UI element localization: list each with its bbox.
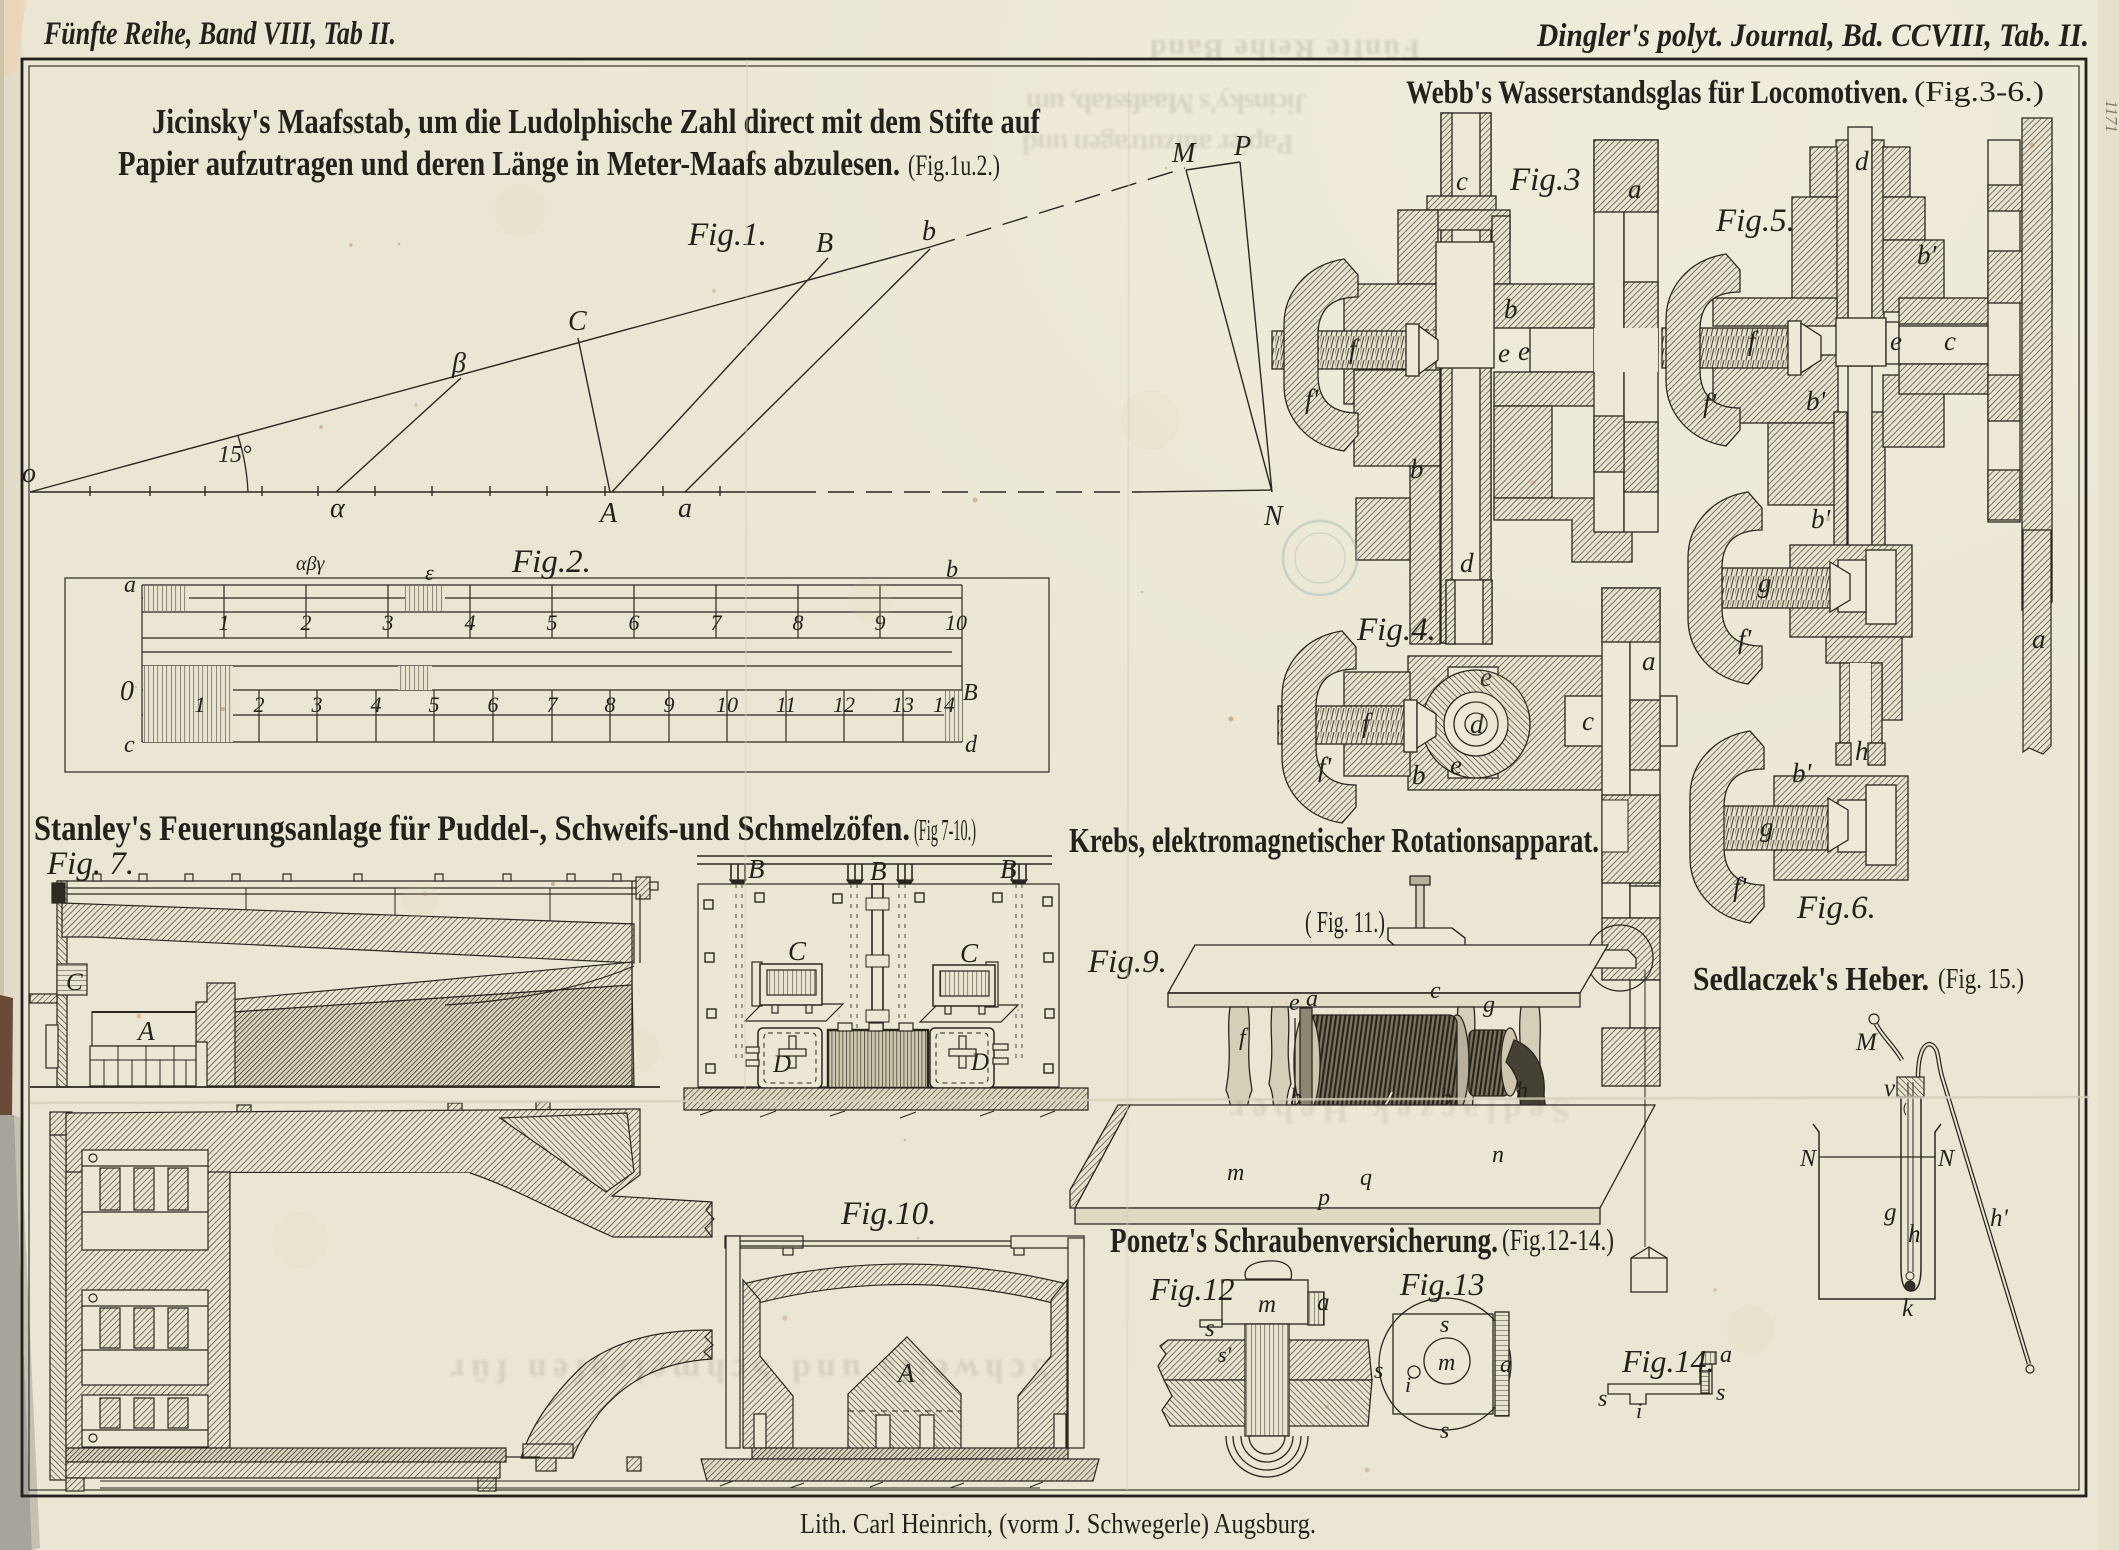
svg-text:A: A bbox=[598, 498, 618, 529]
svg-text:a: a bbox=[1500, 1352, 1512, 1378]
svg-text:e: e bbox=[1518, 336, 1530, 366]
svg-text:b: b bbox=[1412, 760, 1426, 790]
svg-text:s': s' bbox=[1218, 1342, 1232, 1367]
svg-text:f': f' bbox=[1738, 624, 1753, 654]
svg-text:Fig.10.: Fig.10. bbox=[840, 1196, 936, 1232]
svg-text:( Fig. 11.): ( Fig. 11.) bbox=[1305, 904, 1385, 939]
svg-text:m: m bbox=[1258, 1291, 1276, 1318]
svg-text:c: c bbox=[1944, 326, 1956, 356]
svg-text:(Fig. 15.): (Fig. 15.) bbox=[1938, 963, 2024, 995]
svg-text:B: B bbox=[748, 854, 765, 884]
svg-text:5: 5 bbox=[429, 692, 440, 717]
svg-text:C: C bbox=[568, 306, 587, 337]
svg-text:Fig.12: Fig.12 bbox=[1149, 1271, 1234, 1307]
svg-text:e: e bbox=[1498, 338, 1510, 368]
svg-text:αβγ: αβγ bbox=[296, 553, 325, 575]
svg-text:1171: 1171 bbox=[2102, 100, 2119, 133]
svg-text:Jicinsky's Maafsstab, um: Jicinsky's Maafsstab, um bbox=[1026, 87, 1308, 119]
svg-text:Ponetz's Schraubenversicherung: Ponetz's Schraubenversicherung. bbox=[1110, 1221, 1498, 1260]
svg-text:f': f' bbox=[1703, 388, 1718, 418]
svg-text:14: 14 bbox=[933, 692, 955, 717]
svg-text:b: b bbox=[1504, 294, 1518, 324]
svg-text:Fig.4.: Fig.4. bbox=[1356, 612, 1436, 648]
svg-text:Fig.2.: Fig.2. bbox=[511, 544, 591, 580]
svg-text:D: D bbox=[772, 1051, 791, 1078]
svg-text:f': f' bbox=[1733, 872, 1748, 902]
svg-text:C: C bbox=[788, 936, 807, 966]
svg-text:3: 3 bbox=[382, 610, 394, 635]
svg-text:D: D bbox=[970, 1049, 989, 1076]
svg-text:C: C bbox=[960, 938, 979, 968]
svg-text:a: a bbox=[1628, 174, 1642, 204]
svg-text:8: 8 bbox=[605, 692, 616, 717]
svg-text:k: k bbox=[1902, 1295, 1914, 1322]
svg-text:(Fig.1u.2.): (Fig.1u.2.) bbox=[908, 149, 1000, 182]
svg-text:0: 0 bbox=[120, 676, 134, 707]
svg-text:5: 5 bbox=[547, 610, 558, 635]
svg-text:e: e bbox=[1450, 750, 1462, 780]
svg-text:Fig. 7.: Fig. 7. bbox=[46, 846, 134, 882]
svg-text:o: o bbox=[22, 458, 36, 489]
svg-text:6: 6 bbox=[488, 692, 499, 717]
svg-text:c: c bbox=[1430, 978, 1441, 1004]
svg-text:B: B bbox=[870, 856, 887, 886]
svg-text:d: d bbox=[1855, 146, 1869, 176]
svg-text:d: d bbox=[1460, 548, 1474, 578]
svg-text:h': h' bbox=[1990, 1205, 2009, 1232]
svg-text:Webb's Wasserstandsglas für Lo: Webb's Wasserstandsglas für Locomotiven. bbox=[1406, 75, 1908, 111]
svg-text:10: 10 bbox=[716, 692, 738, 717]
svg-text:6: 6 bbox=[629, 610, 640, 635]
svg-text:Stanley's Feuerungsanlage für: Stanley's Feuerungsanlage für Puddel-, S… bbox=[34, 808, 910, 848]
svg-text:C: C bbox=[66, 969, 83, 996]
svg-text:Sedlaczek Heber: Sedlaczek Heber bbox=[1230, 1092, 1570, 1129]
svg-text:h: h bbox=[1908, 1221, 1921, 1248]
svg-text:s: s bbox=[1440, 1418, 1449, 1444]
svg-text:Fig.13: Fig.13 bbox=[1399, 1266, 1484, 1302]
svg-text:g: g bbox=[1483, 992, 1495, 1018]
svg-text:b: b bbox=[946, 557, 958, 583]
svg-text:4: 4 bbox=[465, 610, 476, 635]
svg-text:2: 2 bbox=[301, 610, 312, 635]
svg-text:s: s bbox=[1440, 1312, 1449, 1338]
svg-text:Sedlaczek's Heber.: Sedlaczek's Heber. bbox=[1693, 961, 1929, 998]
svg-text:b': b' bbox=[1917, 240, 1938, 270]
svg-text:g: g bbox=[1884, 1199, 1897, 1226]
svg-text:11: 11 bbox=[776, 692, 796, 717]
svg-text:Papier aufzutragen und deren L: Papier aufzutragen und deren Länge in Me… bbox=[118, 144, 900, 183]
svg-text:s: s bbox=[1716, 1380, 1725, 1406]
svg-text:a: a bbox=[124, 572, 136, 598]
svg-text:B: B bbox=[963, 680, 978, 706]
svg-text:β: β bbox=[451, 348, 466, 379]
svg-text:a: a bbox=[678, 493, 692, 524]
svg-text:B: B bbox=[816, 228, 833, 259]
svg-text:ε: ε bbox=[425, 560, 434, 585]
svg-text:c: c bbox=[124, 732, 135, 758]
svg-text:b: b bbox=[922, 216, 936, 247]
svg-text:Lith. Carl Heinrich, (vorm J.: Lith. Carl Heinrich, (vorm J. Schwegerle… bbox=[800, 1508, 1316, 1540]
svg-text:N: N bbox=[1937, 1146, 1956, 1172]
svg-text:Fig.1.: Fig.1. bbox=[687, 217, 767, 253]
svg-text:Fig.5.: Fig.5. bbox=[1715, 203, 1795, 239]
svg-text:N: N bbox=[1799, 1146, 1818, 1172]
svg-text:e: e bbox=[1890, 326, 1902, 356]
svg-text:s: s bbox=[1205, 1315, 1215, 1342]
svg-text:s: s bbox=[1598, 1386, 1607, 1412]
svg-text:Fünfte Reihe, Band VIII, Tab I: Fünfte Reihe, Band VIII, Tab II. bbox=[43, 16, 396, 52]
svg-text:1: 1 bbox=[219, 610, 230, 635]
svg-text:12: 12 bbox=[833, 692, 855, 717]
svg-text:Dingler's polyt. Journal, Bd.: Dingler's polyt. Journal, Bd. CCVIII, Ta… bbox=[1536, 18, 2089, 54]
svg-text:q: q bbox=[1360, 1165, 1372, 1191]
svg-text:i: i bbox=[1405, 1372, 1411, 1397]
svg-text:M: M bbox=[1855, 1029, 1878, 1056]
svg-text:m: m bbox=[1227, 1160, 1244, 1186]
svg-text:a: a bbox=[2032, 624, 2046, 654]
svg-text:B: B bbox=[1000, 854, 1017, 884]
svg-text:α: α bbox=[330, 493, 346, 524]
svg-text:a: a bbox=[1720, 1342, 1732, 1368]
svg-text:m: m bbox=[1438, 1350, 1455, 1376]
svg-text:c: c bbox=[1456, 166, 1468, 196]
svg-text:g: g bbox=[1760, 812, 1774, 842]
svg-text:Fig.3: Fig.3 bbox=[1509, 162, 1581, 198]
svg-text:3: 3 bbox=[311, 692, 323, 717]
svg-text:1: 1 bbox=[195, 692, 206, 717]
svg-text:f': f' bbox=[1305, 384, 1320, 414]
svg-text:N: N bbox=[1263, 501, 1284, 532]
svg-text:h: h bbox=[1855, 736, 1869, 766]
svg-text:b': b' bbox=[1792, 758, 1813, 788]
svg-text:a: a bbox=[1306, 986, 1318, 1012]
svg-text:7: 7 bbox=[547, 692, 559, 717]
svg-text:7: 7 bbox=[711, 610, 723, 635]
svg-text:(Fig 7-10.): (Fig 7-10.) bbox=[914, 812, 976, 847]
svg-text:A: A bbox=[136, 1016, 155, 1046]
svg-text:Fünfte Reihe Band: Fünfte Reihe Band bbox=[1150, 33, 1420, 66]
svg-text:i: i bbox=[1636, 1398, 1642, 1423]
svg-text:a: a bbox=[1642, 646, 1656, 676]
svg-text:p: p bbox=[1316, 1185, 1330, 1211]
svg-text:s: s bbox=[1374, 1358, 1383, 1384]
svg-text:Jicinsky's Maafsstab, um die L: Jicinsky's Maafsstab, um die Ludolphisch… bbox=[152, 102, 1040, 141]
svg-text:2: 2 bbox=[254, 692, 265, 717]
svg-text:4: 4 bbox=[371, 692, 382, 717]
svg-text:b: b bbox=[1410, 454, 1424, 484]
svg-text:15°: 15° bbox=[218, 442, 252, 468]
svg-text:a: a bbox=[1317, 1289, 1330, 1316]
svg-text:(Fig.3-6.): (Fig.3-6.) bbox=[1914, 76, 2044, 108]
svg-text:Papier aufzutragen und: Papier aufzutragen und bbox=[1022, 128, 1294, 160]
svg-text:Krebs, elektromagnetischer Rot: Krebs, elektromagnetischer Rotationsappa… bbox=[1069, 821, 1599, 860]
svg-text:10: 10 bbox=[945, 610, 967, 635]
svg-text:9: 9 bbox=[664, 692, 675, 717]
svg-text:Fig.14.: Fig.14. bbox=[1621, 1343, 1714, 1379]
svg-text:c: c bbox=[1582, 706, 1594, 736]
svg-text:g: g bbox=[1758, 568, 1772, 598]
svg-text:e: e bbox=[1289, 990, 1300, 1016]
svg-text:n: n bbox=[1492, 1142, 1504, 1168]
svg-text:13: 13 bbox=[892, 692, 914, 717]
svg-text:d: d bbox=[965, 732, 978, 758]
svg-text:(Fig.12-14.): (Fig.12-14.) bbox=[1502, 1222, 1614, 1257]
svg-text:f': f' bbox=[1318, 752, 1333, 782]
svg-text:b': b' bbox=[1806, 386, 1827, 416]
svg-text:8: 8 bbox=[793, 610, 804, 635]
svg-text:Fig.6.: Fig.6. bbox=[1796, 890, 1876, 926]
